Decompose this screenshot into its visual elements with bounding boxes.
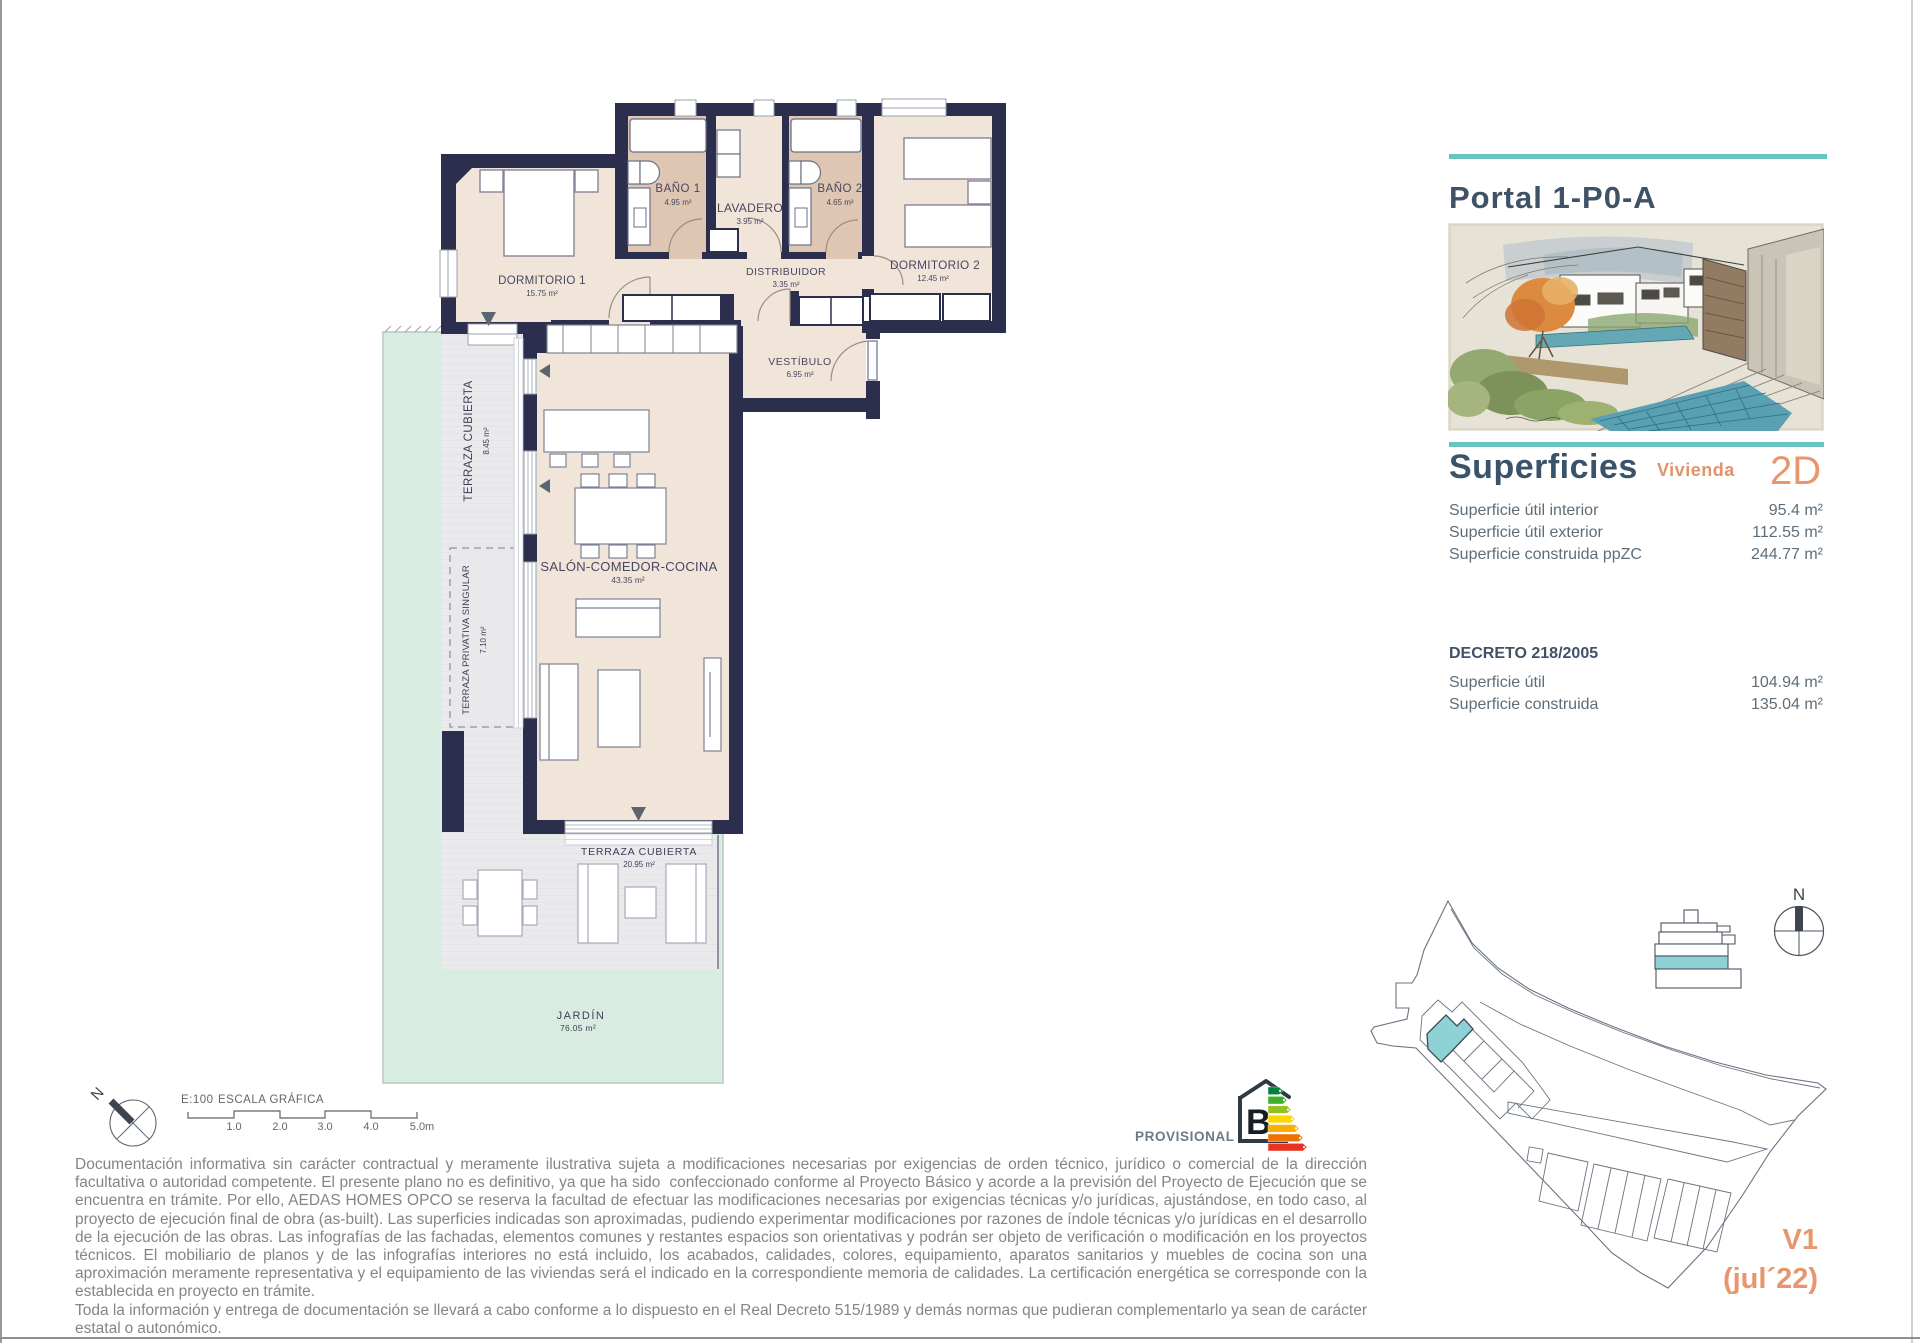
svg-text:43.35 m²: 43.35 m²	[611, 575, 645, 585]
svg-text:2.0: 2.0	[272, 1121, 287, 1133]
svg-text:8.45 m²: 8.45 m²	[482, 427, 491, 454]
svg-text:3.35 m²: 3.35 m²	[772, 280, 799, 289]
svg-text:DORMITORIO 1: DORMITORIO 1	[498, 275, 586, 287]
svg-text:1.0: 1.0	[226, 1121, 241, 1133]
svg-text:3.95 m²: 3.95 m²	[736, 217, 763, 226]
svg-text:5.0m: 5.0m	[410, 1121, 434, 1133]
svg-text:(jul´22): (jul´22)	[1723, 1263, 1818, 1295]
svg-text:7.10 m²: 7.10 m²	[479, 626, 488, 653]
svg-text:4.0: 4.0	[363, 1121, 378, 1133]
svg-text:76.05 m²: 76.05 m²	[560, 1023, 596, 1033]
svg-text:15.75 m²: 15.75 m²	[526, 289, 558, 298]
svg-text:6.95 m²: 6.95 m²	[786, 370, 813, 379]
svg-text:4.65 m²: 4.65 m²	[826, 198, 853, 207]
svg-text:N: N	[88, 1084, 108, 1103]
svg-text:VESTÍBULO: VESTÍBULO	[768, 355, 831, 368]
svg-text:SALÓN-COMEDOR-COCINA: SALÓN-COMEDOR-COCINA	[540, 559, 717, 574]
svg-text:LAVADERO: LAVADERO	[717, 201, 783, 215]
svg-text:B: B	[1246, 1103, 1271, 1142]
svg-text:12.45 m²: 12.45 m²	[917, 274, 949, 283]
svg-text:N: N	[1793, 885, 1805, 904]
svg-text:TERRAZA CUBIERTA: TERRAZA CUBIERTA	[463, 380, 475, 501]
svg-text:3.0: 3.0	[317, 1121, 332, 1133]
svg-text:DISTRIBUIDOR: DISTRIBUIDOR	[746, 266, 826, 278]
svg-text:TERRAZA CUBIERTA: TERRAZA CUBIERTA	[581, 846, 697, 858]
svg-text:V1: V1	[1783, 1224, 1818, 1256]
svg-text:E:100: E:100	[181, 1094, 214, 1106]
svg-text:BAÑO 2: BAÑO 2	[817, 182, 862, 195]
svg-text:20.95 m²: 20.95 m²	[623, 860, 655, 869]
svg-text:BAÑO 1: BAÑO 1	[655, 182, 700, 195]
svg-text:TERRAZA PRIVATIVA SINGULAR: TERRAZA PRIVATIVA SINGULAR	[461, 565, 472, 715]
svg-text:DORMITORIO 2: DORMITORIO 2	[890, 258, 980, 272]
svg-text:ESCALA GRÁFICA: ESCALA GRÁFICA	[218, 1093, 324, 1106]
svg-text:4.95 m²: 4.95 m²	[664, 198, 691, 207]
svg-text:JARDÍN: JARDÍN	[557, 1009, 606, 1022]
